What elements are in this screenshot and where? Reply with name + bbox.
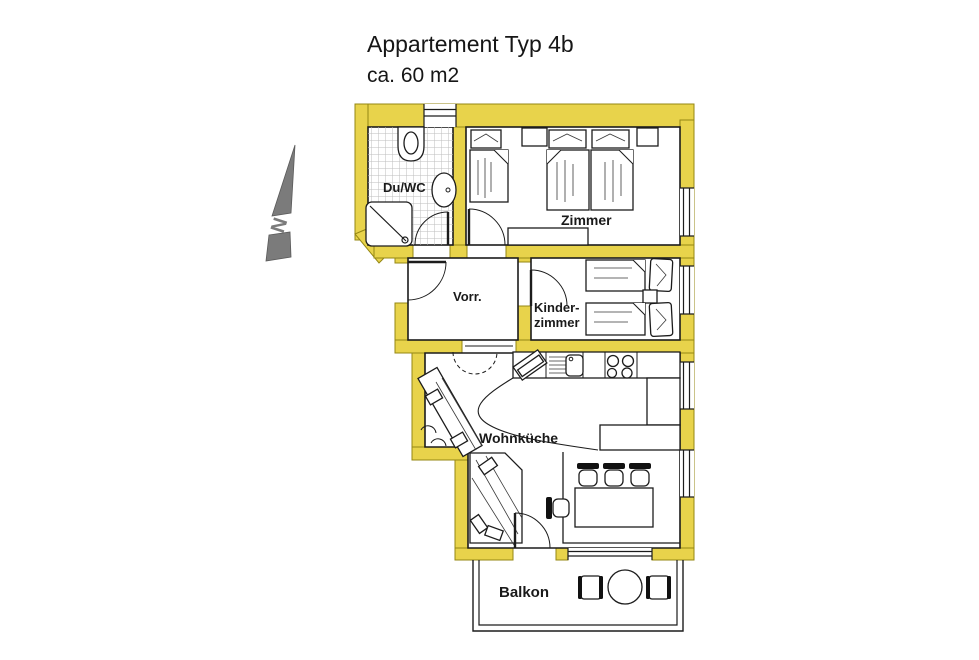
window-kids-right bbox=[680, 266, 694, 314]
page-title: Appartement Typ 4b bbox=[367, 31, 574, 58]
compass-n-label: N bbox=[267, 215, 292, 236]
label-kids-room-2: zimmer bbox=[534, 315, 580, 330]
label-living-kitchen: Wohnküche bbox=[479, 430, 558, 446]
sink-fixture bbox=[432, 173, 456, 207]
shower-fixture bbox=[366, 202, 412, 246]
label-shower-wc: Du/WC bbox=[383, 180, 426, 195]
floorplan-drawing: N bbox=[0, 0, 979, 660]
chair bbox=[603, 463, 625, 486]
label-kids-room-1: Kinder- bbox=[534, 300, 580, 315]
nightstand bbox=[637, 128, 658, 146]
floorplan-page: N Appartement Typ 4b ca. 60 m2 Du/WC Zim… bbox=[0, 0, 979, 660]
balcony-table bbox=[608, 570, 642, 604]
north-arrow-icon: N bbox=[266, 145, 295, 261]
nightstand bbox=[522, 128, 547, 146]
window-top bbox=[424, 104, 456, 127]
window-balcony bbox=[568, 548, 652, 560]
counter-right bbox=[647, 378, 680, 425]
window-bedroom-right bbox=[680, 188, 694, 236]
kids-bed-2 bbox=[586, 302, 673, 336]
window-living-right bbox=[680, 450, 694, 497]
balcony-chair-right bbox=[646, 576, 671, 599]
wardrobe bbox=[508, 228, 588, 245]
kitchen-sink bbox=[566, 355, 583, 376]
dining-table bbox=[575, 488, 653, 527]
label-balcony: Balkon bbox=[499, 584, 549, 601]
kids-bed-1 bbox=[586, 258, 673, 291]
chair bbox=[577, 463, 599, 486]
nightstand bbox=[643, 290, 657, 303]
balcony-chair-left bbox=[578, 576, 603, 599]
chair bbox=[629, 463, 651, 486]
label-bedroom: Zimmer bbox=[561, 212, 612, 228]
kitchen-counter bbox=[513, 350, 680, 380]
page-subtitle: ca. 60 m2 bbox=[367, 64, 459, 88]
label-hallway: Vorr. bbox=[453, 289, 482, 304]
chair bbox=[546, 497, 569, 519]
window-kitchen-right bbox=[680, 362, 694, 409]
toilet-fixture bbox=[398, 127, 424, 161]
sideboard bbox=[600, 425, 680, 450]
